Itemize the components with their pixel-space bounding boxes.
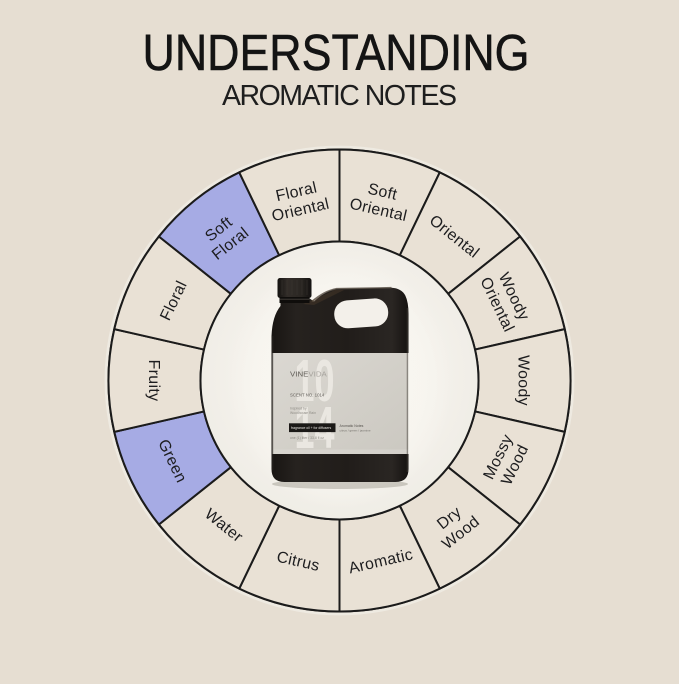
svg-text:fragrance oil + for diffusers: fragrance oil + for diffusers: [291, 426, 331, 430]
svg-text:Aromatic Notes: Aromatic Notes: [340, 424, 364, 428]
svg-text:VINEVIDA: VINEVIDA: [290, 370, 328, 379]
svg-text:UNDERSTANDING: UNDERSTANDING: [143, 24, 530, 81]
svg-text:citrus / green / jasmine: citrus / green / jasmine: [340, 429, 371, 433]
svg-text:AROMATIC NOTES: AROMATIC NOTES: [222, 80, 457, 112]
svg-text:Fruity: Fruity: [145, 360, 162, 402]
svg-text:Woodhouse Rain: Woodhouse Rain: [290, 411, 316, 415]
svg-text:Woody: Woody: [515, 355, 532, 406]
svg-text:SCENT NO. 1014: SCENT NO. 1014: [290, 392, 325, 397]
svg-text:one (1) liter / 33.8 fl oz: one (1) liter / 33.8 fl oz: [290, 436, 324, 440]
